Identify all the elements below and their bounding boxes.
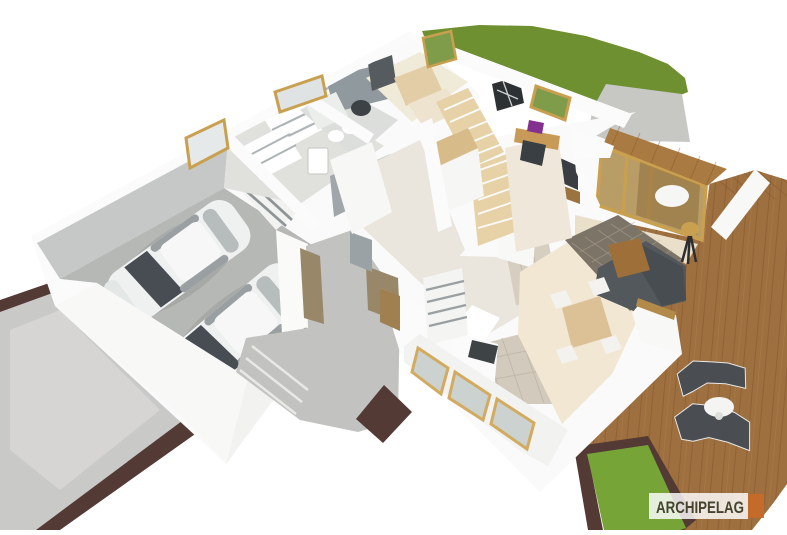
svg-text:ARCHIPELAG: ARCHIPELAG (656, 498, 744, 517)
